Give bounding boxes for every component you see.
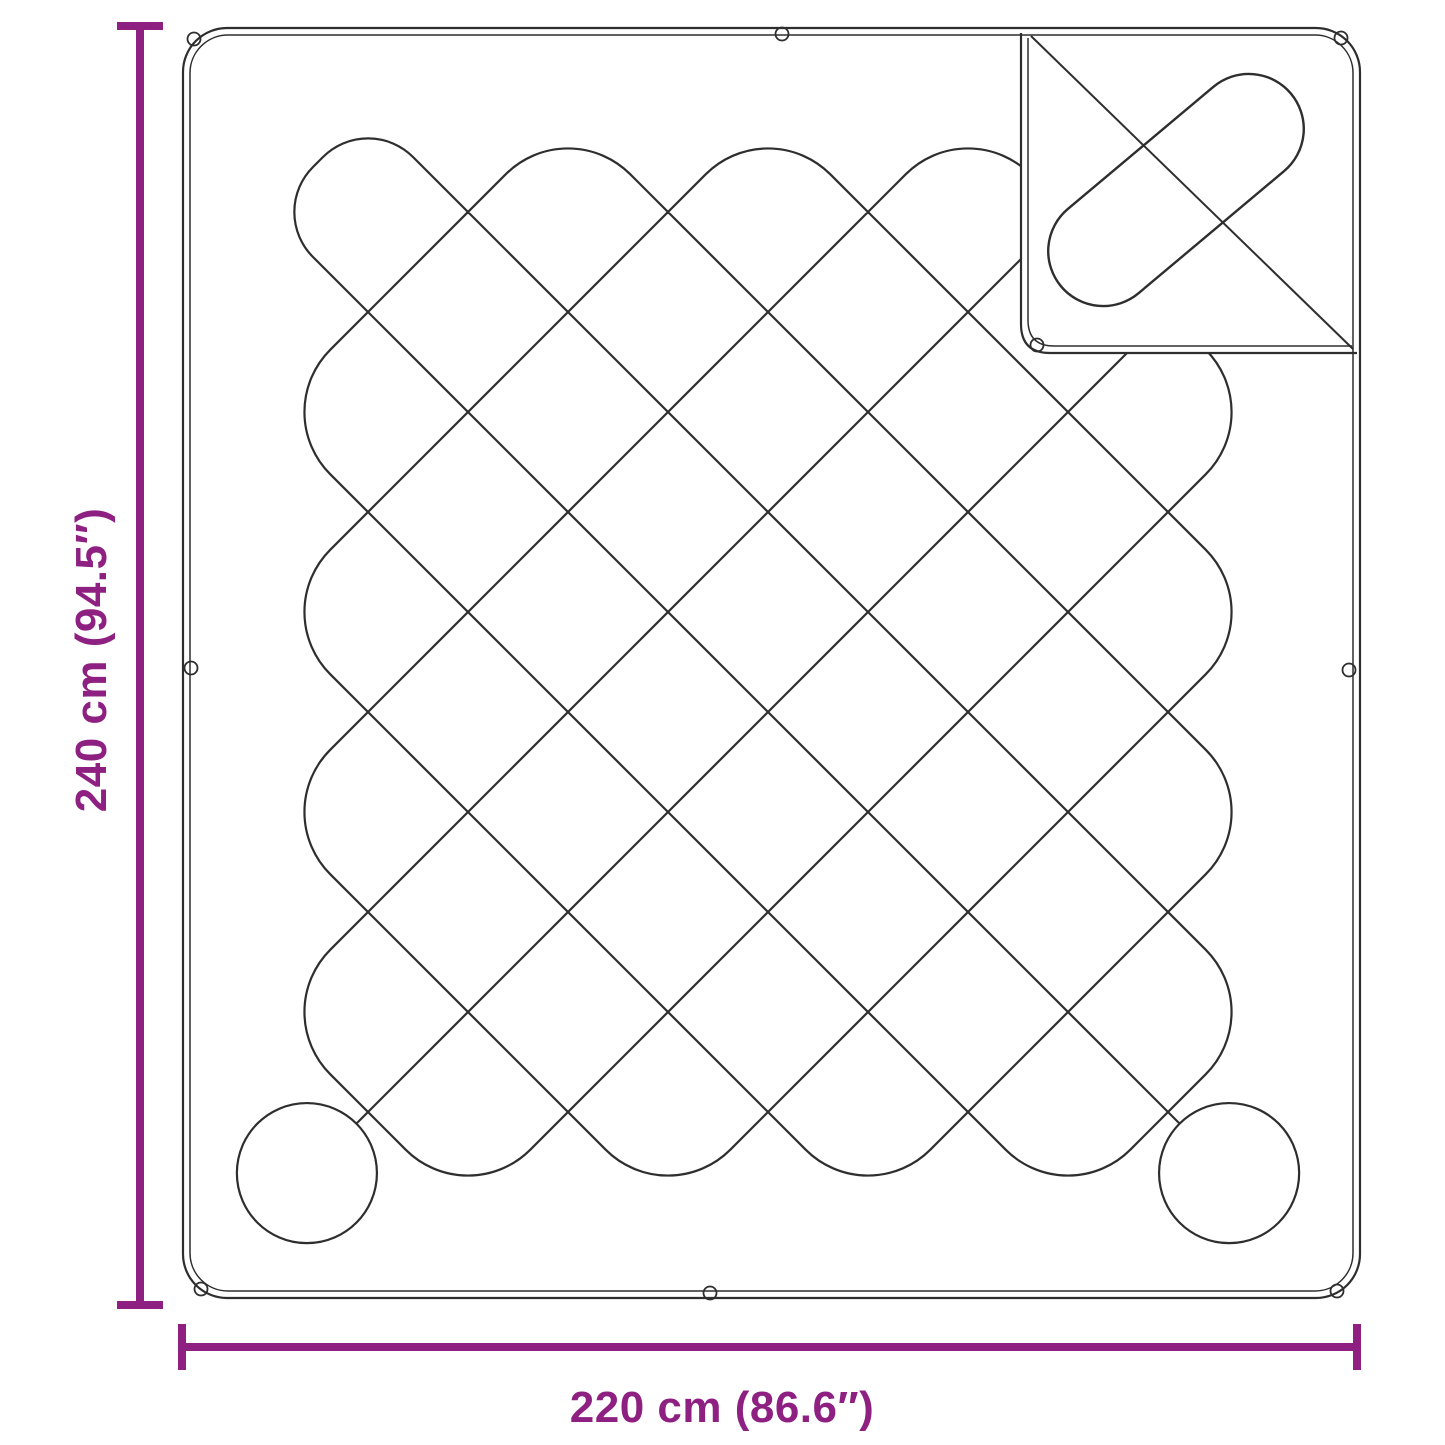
height-dimension-label: 240 cm (94.5″) — [62, 460, 122, 860]
grommet-left-middle — [185, 662, 198, 675]
width-dimension-label: 220 cm (86.6″) — [472, 1378, 972, 1438]
grommet-top-middle — [776, 28, 789, 41]
blanket-drawing — [0, 0, 1445, 1445]
blanket-dimension-diagram: 240 cm (94.5″) 220 cm (86.6″) — [0, 0, 1445, 1445]
